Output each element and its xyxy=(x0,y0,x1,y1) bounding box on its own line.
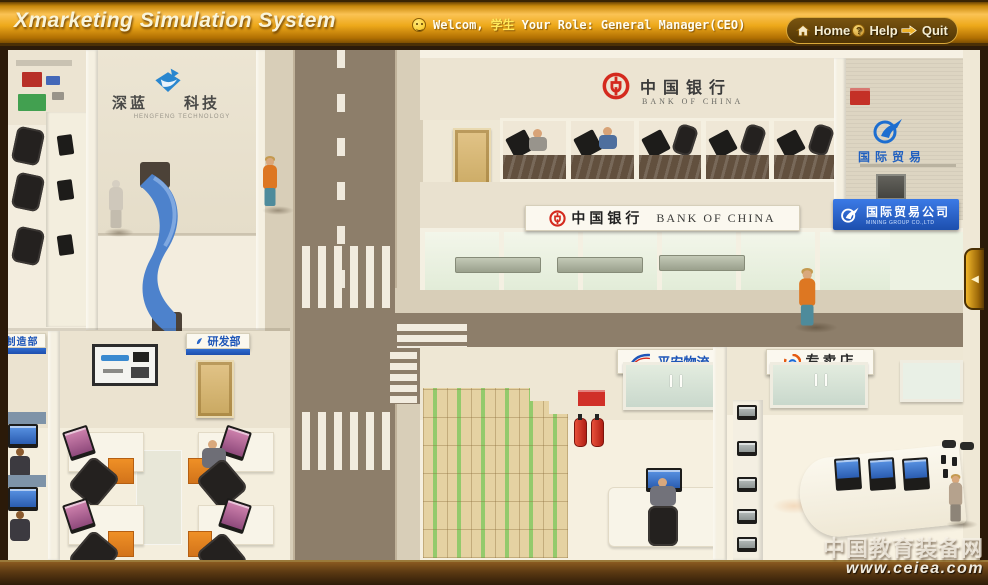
welcome-prefix: Welcom, xyxy=(433,18,484,32)
wall-divider xyxy=(86,50,98,330)
home-label: Home xyxy=(814,23,850,38)
worker-head xyxy=(16,511,24,519)
fire-extinguisher xyxy=(574,418,587,447)
display-screen xyxy=(737,441,757,456)
figure-shadow xyxy=(104,228,134,237)
bank-of-china-logo xyxy=(602,72,630,100)
manufacturing-sign-band xyxy=(8,348,46,354)
worker-head xyxy=(16,448,24,456)
trade-door xyxy=(876,174,906,200)
simulation-map: 深蓝 科技 HENGFENG TECHNOLOGY xyxy=(8,50,980,560)
monitor xyxy=(57,234,75,256)
fire-safety-sign xyxy=(578,390,605,406)
road-horizontal xyxy=(395,313,963,347)
trade-logo-icon xyxy=(870,118,906,144)
wall-divider xyxy=(713,347,727,560)
cubicle-panel xyxy=(8,475,46,487)
worker-body xyxy=(10,519,30,541)
help-label: Help xyxy=(869,23,897,38)
display-screen xyxy=(737,509,757,524)
poster-red xyxy=(22,72,42,87)
bank-sign-subtitle: BANK OF CHINA xyxy=(656,211,775,226)
mannequin-figure xyxy=(108,178,124,230)
smiley-icon xyxy=(412,18,426,32)
panel-collapse-tab[interactable] xyxy=(964,248,984,310)
tech-name-left: 深蓝 xyxy=(112,92,168,113)
building-top-ledge xyxy=(420,50,963,58)
manufacturing-name: 制造部 xyxy=(8,333,39,348)
teller-booth xyxy=(571,121,634,179)
monitor xyxy=(57,134,75,156)
trade-wall-name: 国际贸易 xyxy=(858,148,968,165)
trade-company-sign[interactable]: 国际贸易公司 MINING GROUP CO.,LTD xyxy=(833,199,959,230)
poster-text-strip xyxy=(16,60,72,66)
glass-cabinet xyxy=(770,362,868,408)
bank-storefront-sign[interactable]: 中国银行 BANK OF CHINA xyxy=(525,205,800,231)
teller-booth xyxy=(503,121,566,179)
tech-subtitle: HENGFENG TECHNOLOGY xyxy=(100,114,264,120)
glass-cabinet xyxy=(900,360,963,402)
laptop-display xyxy=(868,457,896,491)
wall-picture-frame xyxy=(92,344,158,386)
teller-body xyxy=(599,135,617,149)
cargo-box-stack xyxy=(423,388,568,558)
bank-teller-row xyxy=(500,118,840,182)
welcome-username: 学生 xyxy=(491,16,515,33)
rnd-sign: 研发部 xyxy=(186,333,250,349)
wall-divider xyxy=(834,58,846,208)
rnd-door xyxy=(196,360,234,418)
workstation-monitor xyxy=(8,424,38,448)
product-bag xyxy=(942,440,956,448)
product-bag xyxy=(960,442,974,450)
tech-name-right: 科技 xyxy=(184,92,240,113)
display-screen xyxy=(737,537,757,552)
quit-label: Quit xyxy=(922,23,948,38)
welcome-line: Welcom, 学生 Your Role: General Manager(CE… xyxy=(412,16,745,33)
teller-booth xyxy=(706,121,769,179)
laptop-display xyxy=(834,457,862,491)
teller-booth xyxy=(639,121,702,179)
manufacturing-sign: 制造部 xyxy=(8,333,46,348)
phone-item xyxy=(941,455,946,464)
display-screen xyxy=(737,405,757,420)
walking-woman-figure xyxy=(798,268,816,337)
trade-logo-icon-white xyxy=(839,206,861,224)
glass-cabinet xyxy=(623,362,723,410)
header-bar: Xmarketing Simulation System Welcom, 学生 … xyxy=(0,0,988,46)
bank-sign-name: 中国银行 xyxy=(571,208,643,228)
poster-grey xyxy=(52,92,64,100)
poster-blue xyxy=(46,76,60,85)
wall-divider xyxy=(48,331,60,560)
sidewalk-bank-front xyxy=(395,288,963,313)
home-icon xyxy=(796,24,810,37)
bank-of-china-logo xyxy=(549,210,566,227)
worker-body xyxy=(650,486,676,506)
app-title: Xmarketing Simulation System xyxy=(14,9,336,33)
reception-desk xyxy=(120,162,200,344)
waiting-bench xyxy=(659,255,745,271)
app-window: Xmarketing Simulation System Welcom, 学生 … xyxy=(0,0,988,585)
help-button[interactable]: Help xyxy=(852,23,897,38)
trade-sign-name: 国际贸易公司 xyxy=(866,203,950,220)
monitor xyxy=(57,179,75,201)
watermark-site-name: 中国教育装备网 xyxy=(812,531,984,563)
laptop-display xyxy=(902,457,930,491)
display-screen xyxy=(737,477,757,492)
header-nav: Home Help Quit xyxy=(786,17,958,44)
fire-extinguisher xyxy=(591,418,604,447)
teller-body xyxy=(529,137,547,151)
rnd-sign-band xyxy=(186,349,250,355)
teller-booth xyxy=(774,121,837,179)
trade-wall-subtext xyxy=(860,164,956,167)
poster-green xyxy=(18,94,46,111)
crosswalk-top xyxy=(302,246,390,308)
trade-red-plaque xyxy=(850,88,870,105)
role-label: Your Role: xyxy=(522,18,594,32)
cubicle-panel xyxy=(8,412,46,424)
role-value: General Manager(CEO) xyxy=(601,18,746,32)
quit-arrow-icon xyxy=(900,25,918,36)
rnd-logo-icon xyxy=(196,337,203,345)
rnd-name: 研发部 xyxy=(208,333,241,349)
phone-item xyxy=(952,457,957,466)
crosswalk-junction-south xyxy=(390,352,417,404)
bank-wall[interactable] xyxy=(420,58,840,120)
crosswalk-bottom xyxy=(302,412,390,470)
workstation-monitor xyxy=(8,487,38,511)
watermark-site-url: www.ceiea.com xyxy=(820,560,984,578)
shopper-figure xyxy=(948,474,963,522)
quit-button[interactable]: Quit xyxy=(900,23,948,38)
trade-sign-subtitle: MINING GROUP CO.,LTD xyxy=(866,220,950,226)
waiting-bench xyxy=(455,257,541,273)
trade-storefront-glass xyxy=(890,228,963,290)
waiting-bench xyxy=(557,257,643,273)
office-chair xyxy=(648,506,678,546)
bank-subtitle: BANK OF CHINA xyxy=(642,97,743,106)
bank-name: 中国银行 xyxy=(640,74,732,98)
help-icon xyxy=(852,24,865,37)
crosswalk-branch xyxy=(397,324,467,348)
pedestrian-figure xyxy=(262,156,278,208)
home-button[interactable]: Home xyxy=(796,23,850,38)
